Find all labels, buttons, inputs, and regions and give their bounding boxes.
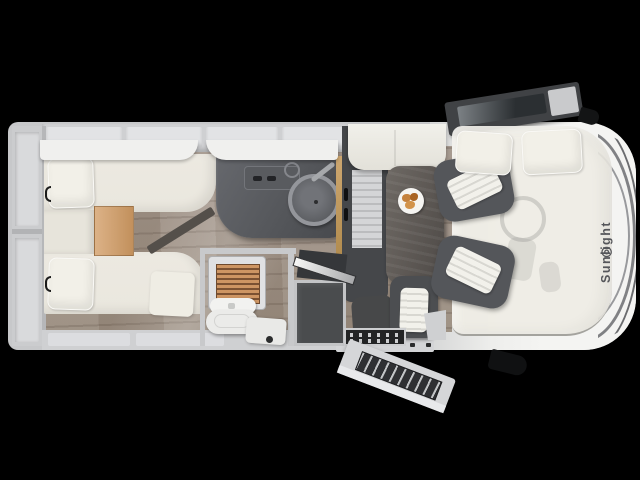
- door-latch: [426, 343, 431, 347]
- bed-pillow: [521, 128, 583, 175]
- dashboard-ghost: [538, 261, 562, 293]
- brand-label: Sunlight ◎: [598, 194, 614, 310]
- overhead-locker-front: [40, 140, 198, 160]
- storage-handle-icon: [45, 186, 51, 202]
- wheel-arch-cover: [424, 310, 446, 340]
- washbasin-faucet: [266, 336, 273, 343]
- wooden-bed-step: [94, 206, 134, 256]
- bed-pillow: [47, 157, 95, 209]
- toilet-button: [228, 303, 235, 309]
- bed-pillow: [47, 257, 95, 311]
- bathroom-wall: [200, 248, 296, 254]
- seat-cushion: [399, 288, 429, 333]
- cabinet-handle-icon: [344, 208, 348, 221]
- garage-divider: [12, 229, 42, 234]
- bed-back-cushion: [149, 271, 195, 317]
- bench-front: [136, 333, 224, 346]
- cooktop-knob: [267, 176, 276, 181]
- cooktop-ring: [284, 162, 300, 178]
- floorplan-canvas: Sunlight ◎: [0, 0, 640, 480]
- toilet-lid-line: [214, 314, 250, 328]
- bed-pillow: [455, 130, 514, 176]
- cab-door-trim: [548, 86, 580, 116]
- side-mirror-bottom-icon: [487, 349, 529, 378]
- cabinet-handle-icon: [344, 188, 348, 201]
- garage-shelf: [15, 238, 39, 342]
- bed-center-console: [44, 210, 94, 254]
- seat-cushion: [444, 245, 503, 296]
- food-item: [410, 193, 418, 201]
- cooktop-knob: [253, 176, 262, 181]
- overhead-locker-front: [206, 140, 338, 160]
- dinette-bench: [348, 124, 446, 170]
- step-grate: [350, 333, 400, 337]
- fridge-vent-front: [352, 170, 382, 248]
- bathroom-wall: [200, 248, 205, 346]
- wardrobe: [294, 280, 346, 346]
- cab-door-window: [457, 93, 547, 127]
- sink-drain: [314, 200, 318, 204]
- food-item: [405, 201, 415, 209]
- garage-shelf: [15, 132, 39, 226]
- rear-garage: [12, 126, 42, 346]
- storage-handle-icon: [45, 276, 51, 292]
- food-plate: [398, 188, 424, 214]
- bench-front: [48, 333, 130, 346]
- sun-logo-icon: ◎: [598, 246, 614, 257]
- door-latch: [410, 343, 415, 347]
- bench-divider: [394, 130, 396, 166]
